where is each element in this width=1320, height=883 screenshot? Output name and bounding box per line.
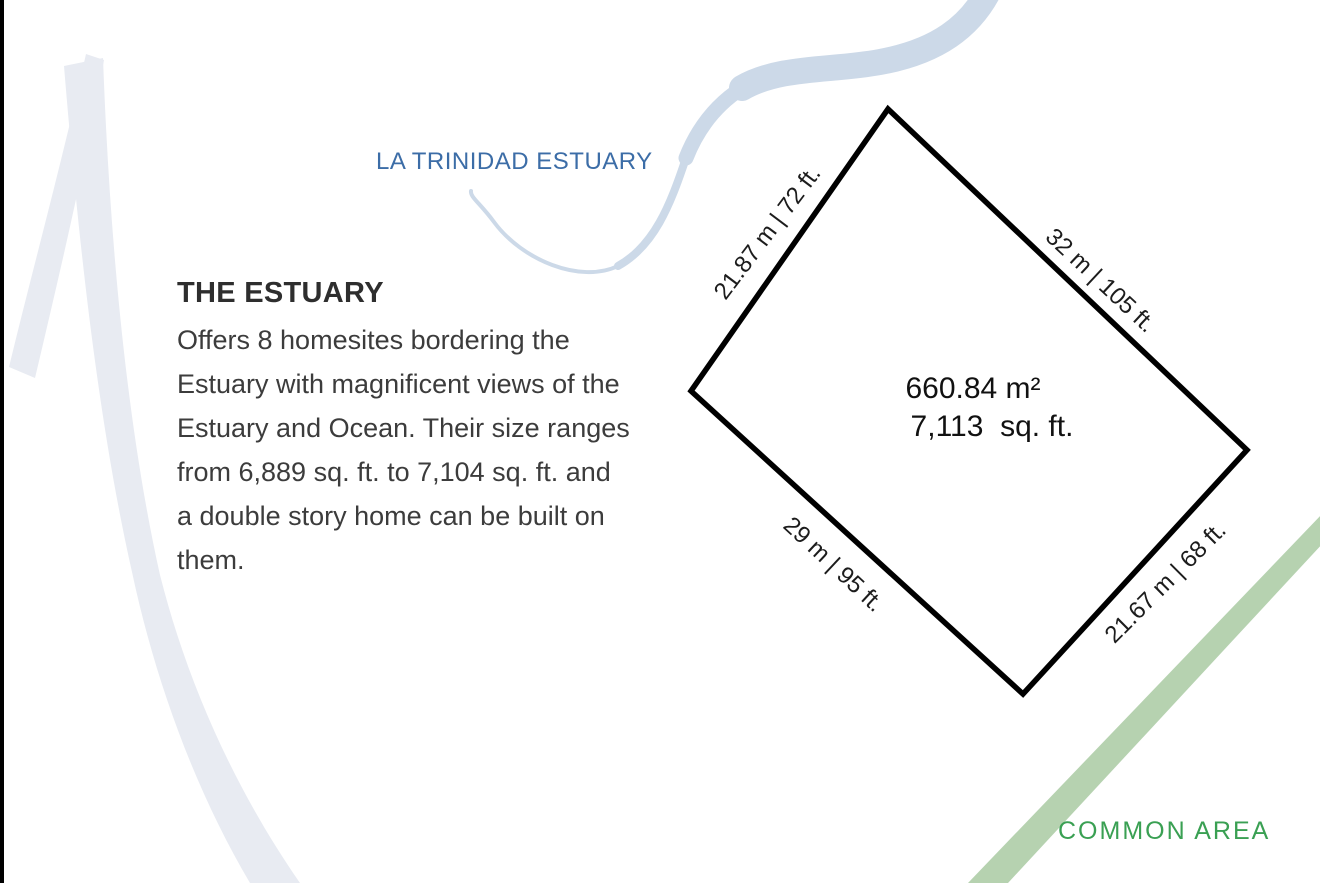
lot-area-square-feet: 7,113 sq. ft. [911, 410, 1074, 444]
brochure-page: LA TRINIDAD ESTUARY THE ESTUARY Offers 8… [0, 0, 1320, 883]
section-heading: THE ESTUARY [177, 277, 384, 310]
common-area-label: COMMON AREA [1058, 817, 1270, 846]
section-description: Offers 8 homesites bordering the Estuary… [177, 318, 697, 582]
estuary-title-label: LA TRINIDAD ESTUARY [376, 148, 653, 176]
page-left-border [0, 0, 4, 883]
lot-area-square-meters: 660.84 m² [905, 372, 1040, 406]
